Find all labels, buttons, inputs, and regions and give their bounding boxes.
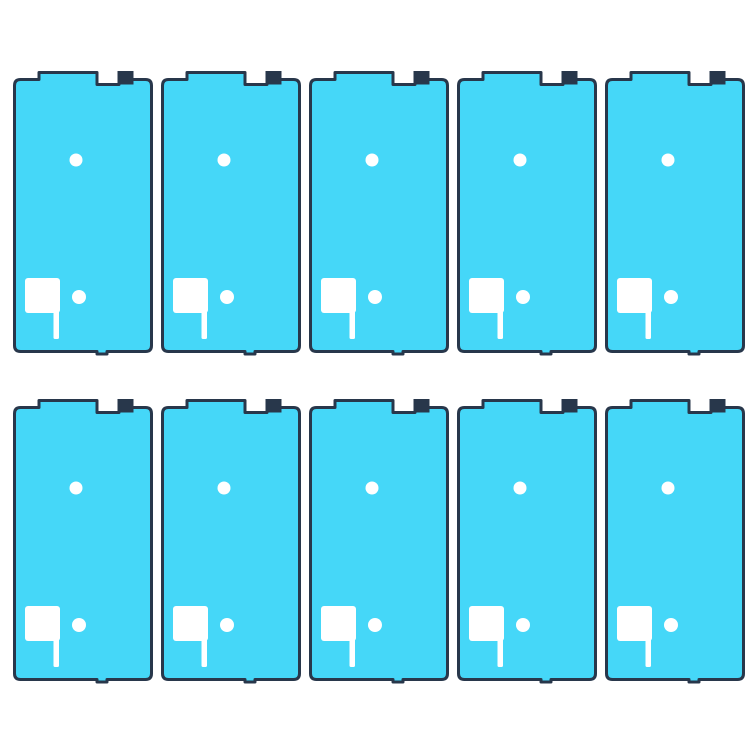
top-notch-tab bbox=[266, 71, 282, 85]
flag-cutout bbox=[25, 278, 60, 313]
top-notch-tab bbox=[414, 399, 430, 413]
flag-cutout bbox=[321, 278, 356, 313]
lower-hole-cutout bbox=[220, 618, 234, 632]
upper-hole-cutout bbox=[662, 154, 675, 167]
top-notch-tab bbox=[414, 71, 430, 85]
flag-cutout bbox=[25, 606, 60, 641]
top-notch-tab bbox=[118, 71, 134, 85]
flag-cutout bbox=[469, 278, 504, 313]
adhesive-sticker bbox=[457, 399, 597, 681]
adhesive-sticker bbox=[605, 399, 745, 681]
flag-cutout bbox=[617, 278, 652, 313]
flag-cutout bbox=[173, 278, 208, 313]
flag-stem-cutout bbox=[646, 309, 652, 339]
flag-cutout bbox=[617, 606, 652, 641]
top-notch-tab bbox=[118, 399, 134, 413]
lower-hole-cutout bbox=[72, 618, 86, 632]
adhesive-sticker bbox=[605, 71, 745, 353]
top-notch-tab bbox=[710, 399, 726, 413]
lower-hole-cutout bbox=[516, 290, 530, 304]
upper-hole-cutout bbox=[366, 482, 379, 495]
upper-hole-cutout bbox=[514, 154, 527, 167]
adhesive-sticker bbox=[457, 71, 597, 353]
lower-hole-cutout bbox=[516, 618, 530, 632]
adhesive-sticker bbox=[161, 71, 301, 353]
product-photo bbox=[0, 0, 750, 750]
lower-hole-cutout bbox=[368, 618, 382, 632]
adhesive-sticker bbox=[13, 71, 153, 353]
top-notch-tab bbox=[562, 71, 578, 85]
upper-hole-cutout bbox=[218, 482, 231, 495]
flag-stem-cutout bbox=[350, 309, 356, 339]
upper-hole-cutout bbox=[70, 482, 83, 495]
adhesive-sticker bbox=[161, 399, 301, 681]
lower-hole-cutout bbox=[220, 290, 234, 304]
flag-stem-cutout bbox=[54, 309, 60, 339]
adhesive-sticker bbox=[13, 399, 153, 681]
lower-hole-cutout bbox=[72, 290, 86, 304]
top-notch-tab bbox=[266, 399, 282, 413]
sticker-grid bbox=[13, 71, 745, 681]
upper-hole-cutout bbox=[70, 154, 83, 167]
upper-hole-cutout bbox=[218, 154, 231, 167]
flag-stem-cutout bbox=[54, 637, 60, 667]
top-notch-tab bbox=[562, 399, 578, 413]
flag-cutout bbox=[321, 606, 356, 641]
flag-stem-cutout bbox=[646, 637, 652, 667]
flag-stem-cutout bbox=[498, 637, 504, 667]
flag-cutout bbox=[469, 606, 504, 641]
adhesive-sticker bbox=[309, 399, 449, 681]
flag-stem-cutout bbox=[350, 637, 356, 667]
flag-stem-cutout bbox=[498, 309, 504, 339]
flag-stem-cutout bbox=[202, 637, 208, 667]
adhesive-sticker bbox=[309, 71, 449, 353]
top-notch-tab bbox=[710, 71, 726, 85]
upper-hole-cutout bbox=[366, 154, 379, 167]
lower-hole-cutout bbox=[664, 290, 678, 304]
lower-hole-cutout bbox=[368, 290, 382, 304]
upper-hole-cutout bbox=[514, 482, 527, 495]
lower-hole-cutout bbox=[664, 618, 678, 632]
flag-cutout bbox=[173, 606, 208, 641]
upper-hole-cutout bbox=[662, 482, 675, 495]
flag-stem-cutout bbox=[202, 309, 208, 339]
